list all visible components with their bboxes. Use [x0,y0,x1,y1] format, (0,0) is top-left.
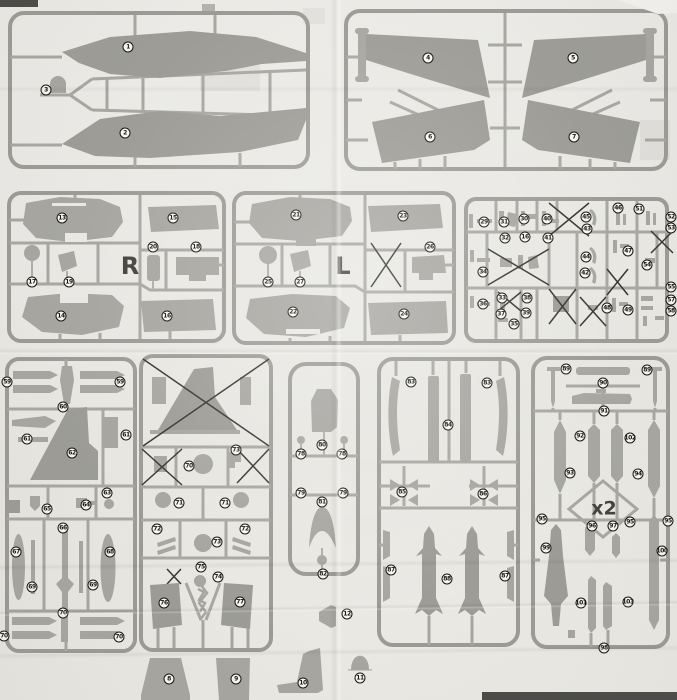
part-17 [24,245,40,261]
part-big-missile [544,524,568,626]
sprue-mid-right-dense [466,199,673,341]
top-left-dark-bar [0,0,38,7]
part-25 [259,246,277,264]
part-wing-half-4 [366,34,490,98]
sprue-diagram [0,0,677,700]
part-15 [148,205,219,232]
sprue-top-left [10,13,308,167]
small-parts [12,366,125,642]
part-wing-lower [62,108,306,158]
sprue-bottom-2 [141,356,271,650]
part-intake-right [221,583,253,629]
sprue-top-right [346,11,666,169]
part-missile-left [415,526,443,616]
part-16 [141,299,216,332]
top-edge-nub [202,4,215,11]
part-windshield [309,507,336,548]
part-24 [368,301,448,335]
part-tail-fin-crossed [158,367,237,430]
sprue-mid-left-R [9,193,224,341]
part-8 [141,658,190,700]
part-10-seat [277,648,323,693]
part-23 [368,204,443,232]
part-canopy [311,389,338,432]
part-wing-half-6 [372,100,490,163]
part-dome-small [50,76,66,93]
part-27 [290,250,311,272]
part-11-dome [351,656,369,670]
sprue-bottom-1 [7,359,135,651]
part-19 [58,251,77,272]
part-20 [147,255,160,281]
part-26 [412,255,446,280]
part-18 [176,257,219,281]
part-missile-right [458,526,486,616]
sprue-mid-center-L [234,193,454,343]
sprue-bottom-3-canopy [290,364,358,574]
part-9 [216,658,250,700]
part-21 [249,197,352,241]
part-intake-left [150,583,182,629]
part-wing-half-5 [522,34,646,98]
part-wing-half-7 [522,100,640,163]
scanned-parts-sheet: 1234567131520181719141621232625272224293… [0,0,677,700]
sprue-bottom-4-missiles [379,359,518,645]
part-12 [319,605,336,628]
bottom-dark-bar [482,692,677,700]
scan-artifacts [0,0,677,700]
sprue-bottom-5-x2 [533,358,668,647]
